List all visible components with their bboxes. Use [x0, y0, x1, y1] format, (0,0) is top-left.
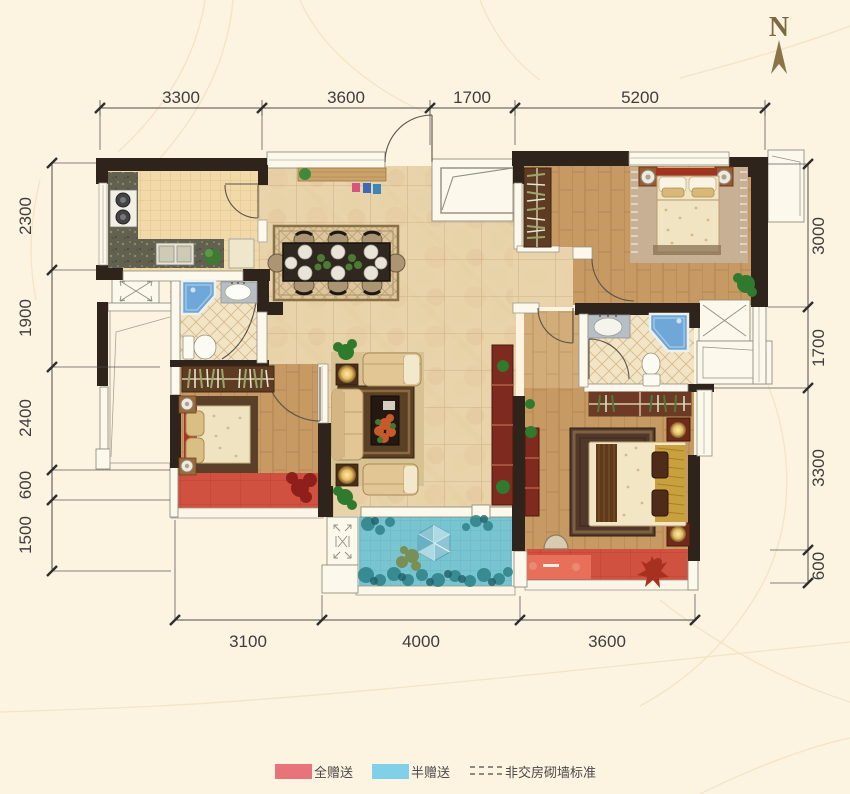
svg-text:全赠送: 全赠送	[314, 765, 353, 780]
svg-text:3100: 3100	[229, 632, 267, 651]
svg-text:1500: 1500	[16, 516, 35, 554]
svg-text:2300: 2300	[16, 197, 35, 235]
svg-text:5200: 5200	[621, 88, 659, 107]
svg-text:4000: 4000	[402, 632, 440, 651]
svg-text:1700: 1700	[453, 88, 491, 107]
svg-text:1700: 1700	[809, 329, 828, 367]
svg-text:3300: 3300	[809, 449, 828, 487]
svg-text:600: 600	[16, 471, 35, 499]
svg-text:2400: 2400	[16, 399, 35, 437]
svg-text:1900: 1900	[16, 299, 35, 337]
svg-text:600: 600	[809, 552, 828, 580]
svg-text:3600: 3600	[327, 88, 365, 107]
svg-text:3600: 3600	[588, 632, 626, 651]
svg-text:3000: 3000	[809, 217, 828, 255]
svg-text:N: N	[769, 12, 789, 43]
svg-text:3300: 3300	[162, 88, 200, 107]
svg-text:非交房砌墙标准: 非交房砌墙标准	[505, 765, 596, 780]
svg-text:半赠送: 半赠送	[411, 765, 450, 780]
